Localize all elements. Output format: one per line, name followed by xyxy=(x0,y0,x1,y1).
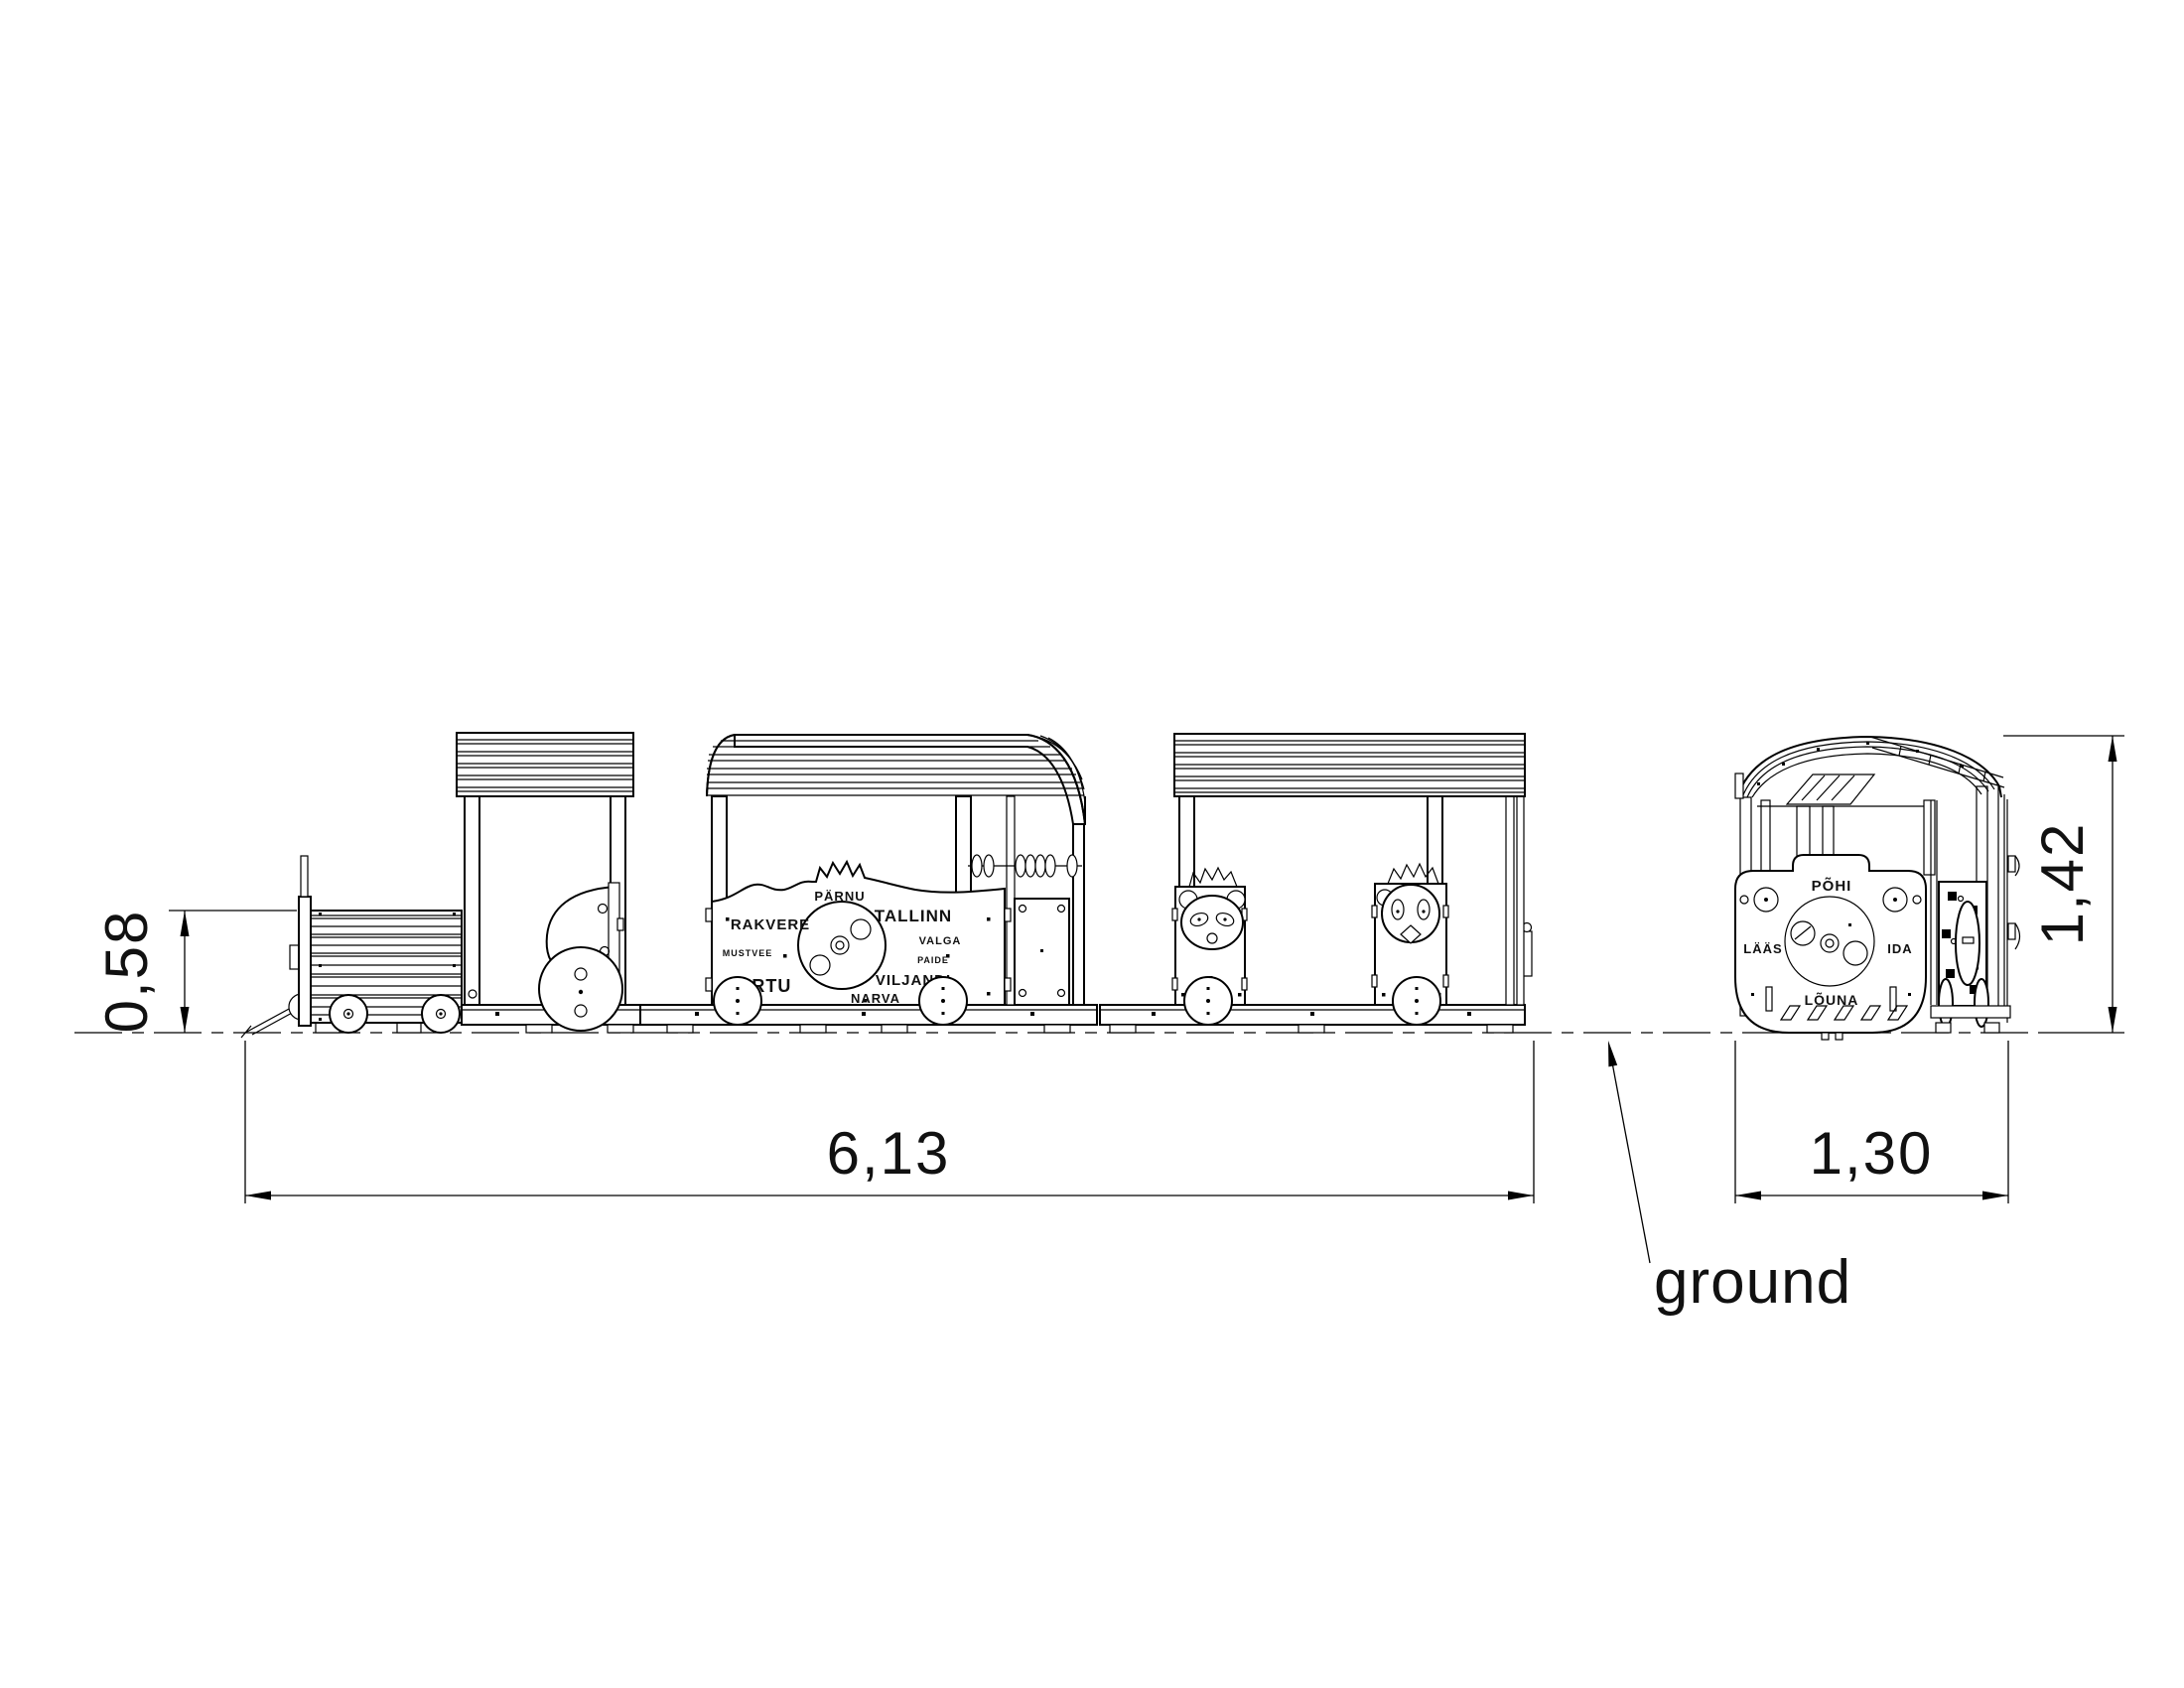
front-right-structure xyxy=(1931,856,2020,1033)
label-rakvere: RAKVERE xyxy=(731,916,810,933)
front-hatch xyxy=(1757,774,1924,806)
label-laas: LÄÄS xyxy=(1743,941,1782,956)
wagon1-roof xyxy=(707,735,1085,824)
wagon2-roof xyxy=(1174,734,1525,796)
technical-drawing: PÄRNU RAKVERE TALLINN MUSTVEE VALGA PAID… xyxy=(0,0,2184,1688)
loco-front-pole xyxy=(301,856,308,897)
wagon1-abacus xyxy=(968,855,1082,877)
cab-roof xyxy=(457,733,633,796)
dim-width: 1,30 xyxy=(1735,1041,2008,1203)
dim-boiler-height: 0,58 xyxy=(93,910,297,1034)
wagon1-frame xyxy=(640,1005,1097,1025)
wagon-2 xyxy=(1100,734,1532,1033)
dim-text-058: 0,58 xyxy=(93,910,160,1034)
wagon-1: PÄRNU RAKVERE TALLINN MUSTVEE VALGA PAID… xyxy=(640,735,1097,1033)
loco-front-plate xyxy=(299,897,311,1026)
locomotive xyxy=(241,733,640,1038)
side-view: PÄRNU RAKVERE TALLINN MUSTVEE VALGA PAID… xyxy=(241,733,1532,1038)
dim-text-613: 6,13 xyxy=(827,1120,951,1187)
front-face-panel: PÕHI LÄÄS IDA LÕUNA xyxy=(1735,855,1926,1040)
label-pohi: PÕHI xyxy=(1812,877,1852,895)
label-narva: NARVA xyxy=(851,991,900,1006)
dim-length: 6,13 xyxy=(245,1041,1534,1203)
front-roof-arch xyxy=(1735,737,2004,798)
cab-front-post xyxy=(465,796,479,1005)
label-valga: VALGA xyxy=(919,935,962,947)
label-tallinn: TALLINN xyxy=(875,907,952,925)
loco-drive-wheel xyxy=(539,947,622,1031)
label-paide: PAIDE xyxy=(917,955,949,965)
front-steering xyxy=(1785,897,1874,986)
dim-text-142: 1,42 xyxy=(2029,822,2096,946)
loco-front-knob xyxy=(290,945,299,969)
ground-label: ground xyxy=(1654,1248,1851,1317)
label-mustvee: MUSTVEE xyxy=(723,948,773,958)
label-ida: IDA xyxy=(1887,941,1912,956)
front-view: PÕHI LÄÄS IDA LÕUNA xyxy=(1735,737,2020,1040)
drawing-page: PÄRNU RAKVERE TALLINN MUSTVEE VALGA PAID… xyxy=(0,0,2184,1688)
dim-height: 1,42 xyxy=(2003,736,2124,1033)
dim-text-130: 1,30 xyxy=(1810,1120,1934,1187)
label-parnu: PÄRNU xyxy=(814,889,865,904)
